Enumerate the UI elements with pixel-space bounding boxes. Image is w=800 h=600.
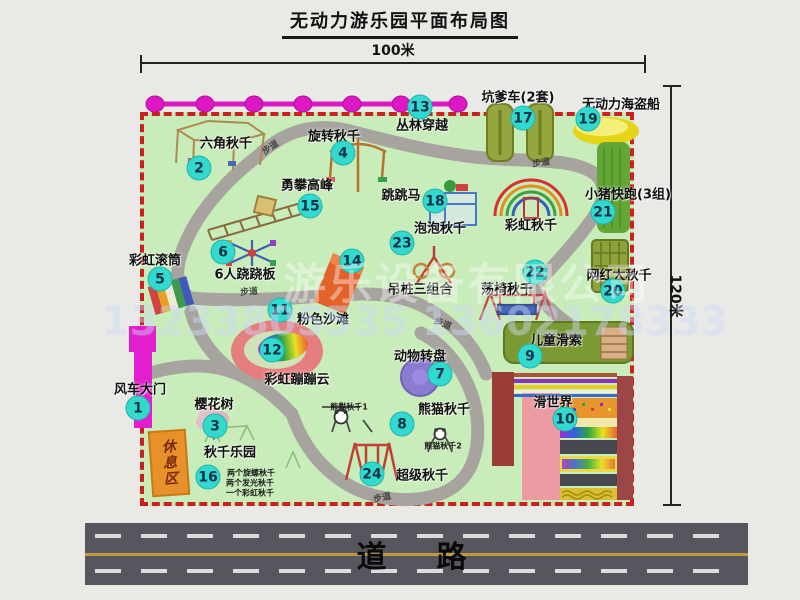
jungle-crossing-line bbox=[146, 96, 467, 112]
road-label: 道 路 bbox=[85, 532, 748, 576]
page-title: 无动力游乐园平面布局图 bbox=[282, 7, 518, 39]
width-dimension-label: 100米 bbox=[371, 40, 414, 60]
attraction-17-label: 坑爹车(2套) bbox=[482, 87, 555, 106]
road: 道 路 bbox=[85, 523, 748, 585]
width-dimension-line bbox=[140, 62, 646, 64]
watermark-phone: 13233805535 13602178333 bbox=[102, 299, 728, 345]
rest-area-box: 休息区 bbox=[148, 429, 191, 497]
park-layout-plan: 无动力游乐园平面布局图 100米 120米 bbox=[0, 0, 800, 600]
rest-area-label: 休息区 bbox=[157, 438, 180, 487]
attraction-19-label: 无动力海盗船 bbox=[582, 94, 660, 113]
